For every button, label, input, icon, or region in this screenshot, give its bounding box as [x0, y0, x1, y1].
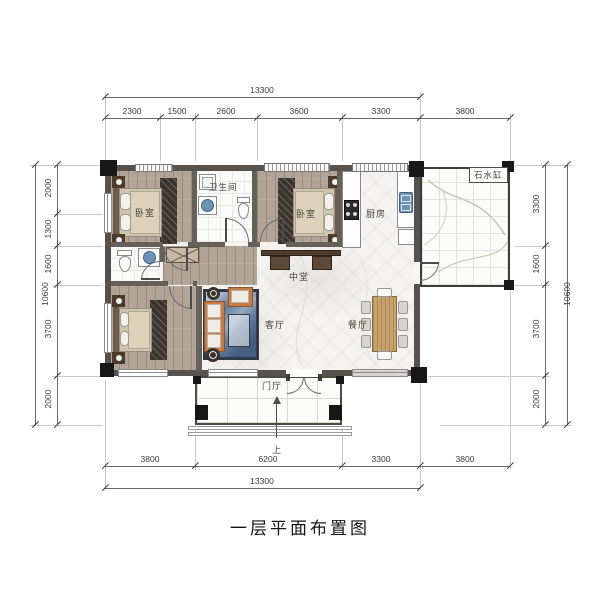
wall-bed2-kitchen [337, 171, 342, 247]
dim-right-seg: 1600 [531, 249, 541, 279]
window-living [208, 369, 258, 377]
window-mullion [209, 372, 257, 373]
dining-chair [377, 288, 392, 297]
wall-under-bed1 [111, 242, 163, 247]
entrance-door-gap [286, 369, 322, 377]
dim-extension-line [195, 113, 196, 161]
dining-chair [398, 335, 408, 348]
dim-line-right-segments [545, 165, 546, 425]
dim-extension-line [428, 376, 550, 377]
room-label-foyer: 门厅 [262, 379, 282, 392]
column [100, 363, 114, 377]
dim-line-left-segments [57, 165, 58, 425]
dim-line-bottom-overall [105, 488, 420, 489]
room-label-kitchen: 厨房 [366, 207, 386, 220]
wall-under-bath [248, 242, 260, 247]
dim-extension-line [257, 113, 258, 161]
dim-extension-line [105, 92, 106, 162]
dim-line-top-segments [105, 118, 510, 119]
door-leaf [141, 278, 160, 280]
window-mullion [107, 304, 108, 352]
sofa-cushion [207, 319, 221, 333]
porch-column [329, 405, 342, 420]
window-mullion [107, 194, 108, 232]
porch-step [188, 426, 352, 430]
dim-extension-line [160, 113, 161, 161]
dining-chair [361, 335, 371, 348]
window-bottom-bedroom-bl [118, 369, 168, 377]
dim-extension-line [52, 376, 102, 377]
dim-extension-line [440, 425, 572, 426]
dim-extension-line [30, 165, 102, 166]
kitchen-sink-basin [401, 195, 411, 202]
dim-left-seg: 2000 [43, 173, 53, 203]
dim-top-seg: 1500 [155, 106, 199, 116]
wall-bath-bed2 [252, 171, 257, 242]
side-table-ring [210, 290, 217, 297]
stove-burner [346, 203, 350, 207]
dim-left-seg: 1300 [43, 214, 53, 244]
window-kitchen [352, 163, 408, 172]
dim-extension-line [52, 214, 102, 215]
column [411, 367, 427, 383]
wall-bed3-right [196, 286, 202, 371]
dim-bottom-seg: 3800 [443, 454, 487, 464]
armchair-cushion [231, 290, 249, 303]
door-leaf [420, 262, 439, 264]
dim-bottom-seg: 3300 [359, 454, 403, 464]
room-label-bathroom: 卫生间 [209, 181, 238, 193]
door-leaf [282, 218, 284, 242]
dining-chair [398, 301, 408, 314]
entry-arrow-shaft [276, 402, 277, 438]
porch-column [195, 405, 208, 420]
dim-extension-line [510, 290, 511, 470]
dim-top-seg: 3600 [277, 106, 321, 116]
stove-burner [346, 212, 350, 216]
dim-extension-line [52, 285, 102, 286]
column [504, 280, 514, 290]
column [409, 161, 424, 177]
porch-column [336, 376, 344, 384]
room-label-dining: 餐厅 [348, 318, 368, 331]
floor-plan-drawing: 13300 2300 1500 2600 3600 3300 3800 3800… [0, 0, 600, 600]
fridge [398, 229, 415, 245]
dim-extension-line [342, 113, 343, 161]
dim-right-seg: 2000 [531, 384, 541, 414]
dim-left-seg: 2000 [43, 384, 53, 414]
window-left-bedroom-bl [104, 303, 112, 353]
nightstand-lamp [116, 179, 122, 185]
sofa-cushion [207, 334, 221, 348]
dim-right-seg: 3700 [531, 314, 541, 344]
room-label-central-hall: 中堂 [289, 270, 309, 283]
dim-top-overall: 13300 [240, 85, 284, 95]
door-leaf [190, 286, 192, 309]
dim-top-seg: 2600 [204, 106, 248, 116]
dim-right-seg: 3300 [531, 189, 541, 219]
wall-under-bath [197, 242, 225, 247]
dim-line-bottom-segments [105, 466, 510, 467]
dining-chair [377, 351, 392, 360]
nightstand-lamp [116, 298, 122, 304]
up-label: 上 [272, 443, 281, 456]
window-bedroom-tl [135, 164, 173, 172]
room-label-living: 客厅 [265, 318, 285, 331]
column [100, 160, 117, 176]
window-mullion [119, 372, 167, 373]
terrace-outline-bottom [420, 285, 510, 287]
dim-extension-line [52, 246, 102, 247]
window-bedroom-tm [264, 163, 330, 172]
dining-chair [398, 318, 408, 331]
drawing-caption: 一层平面布置图 [0, 514, 600, 539]
bed-tl-pillow [120, 214, 131, 231]
altar-table-pedestal [270, 256, 290, 270]
nightstand-lamp [116, 355, 122, 361]
dim-extension-line [420, 380, 421, 490]
stove-burner [353, 212, 357, 216]
bathroom-sink [201, 199, 214, 212]
dim-tick [417, 484, 424, 491]
room-label-bedroom-tl: 卧室 [135, 206, 155, 219]
porch-column [193, 376, 201, 384]
dim-bottom-overall: 13300 [240, 476, 284, 486]
stove-burner [353, 203, 357, 207]
dim-right-overall: 10600 [562, 279, 572, 309]
dim-extension-line [30, 425, 102, 426]
room-label-bedroom-tm: 卧室 [296, 207, 316, 220]
dim-extension-line [105, 380, 106, 490]
entry-arrow-head [273, 396, 281, 404]
wall-under-bed1 [188, 242, 197, 247]
bed-tm-pillow [324, 193, 334, 210]
window-dining [352, 369, 408, 377]
dim-left-overall: 10600 [40, 279, 50, 309]
dim-left-seg: 1600 [43, 249, 53, 279]
stone-water-vat-label: 石水缸 [469, 167, 508, 183]
bedroom-bl-rug [150, 300, 167, 360]
porch-step [188, 432, 352, 436]
dining-table [372, 296, 397, 352]
bed-bl-blanket [128, 311, 150, 349]
dim-bottom-seg: 6200 [246, 454, 290, 464]
bedroom-tl-rug [160, 178, 177, 244]
wall-under-bed2 [286, 242, 342, 247]
dim-top-seg: 2300 [110, 106, 154, 116]
bed-bl-pillow [120, 312, 129, 327]
window-left-bedroom-tl [104, 193, 112, 233]
wall-above-bed3 [111, 281, 168, 286]
dim-line-top-overall [105, 97, 420, 98]
wall-bed1-bath [192, 171, 197, 242]
kitchen-sink-basin [401, 204, 411, 211]
dim-line-left-overall [35, 165, 36, 425]
dim-extension-line [420, 92, 421, 162]
altar-table-pedestal [312, 256, 332, 270]
dining-chair [361, 301, 371, 314]
door-leaf [186, 247, 188, 271]
door-leaf [286, 374, 290, 381]
dim-top-seg: 3800 [443, 106, 487, 116]
side-table-ring [209, 351, 217, 359]
dim-bottom-seg: 3800 [128, 454, 172, 464]
bed-tl-pillow [120, 193, 131, 210]
dim-left-seg: 3700 [43, 314, 53, 344]
door-leaf [318, 374, 322, 381]
dim-top-seg: 3300 [359, 106, 403, 116]
door-leaf [225, 218, 227, 242]
window-mullion [353, 372, 407, 373]
coffee-table [228, 314, 250, 347]
dim-extension-line [510, 113, 511, 161]
sofa-cushion [207, 304, 221, 318]
bed-tm-pillow [324, 214, 334, 231]
bed-bl-pillow [120, 331, 129, 346]
